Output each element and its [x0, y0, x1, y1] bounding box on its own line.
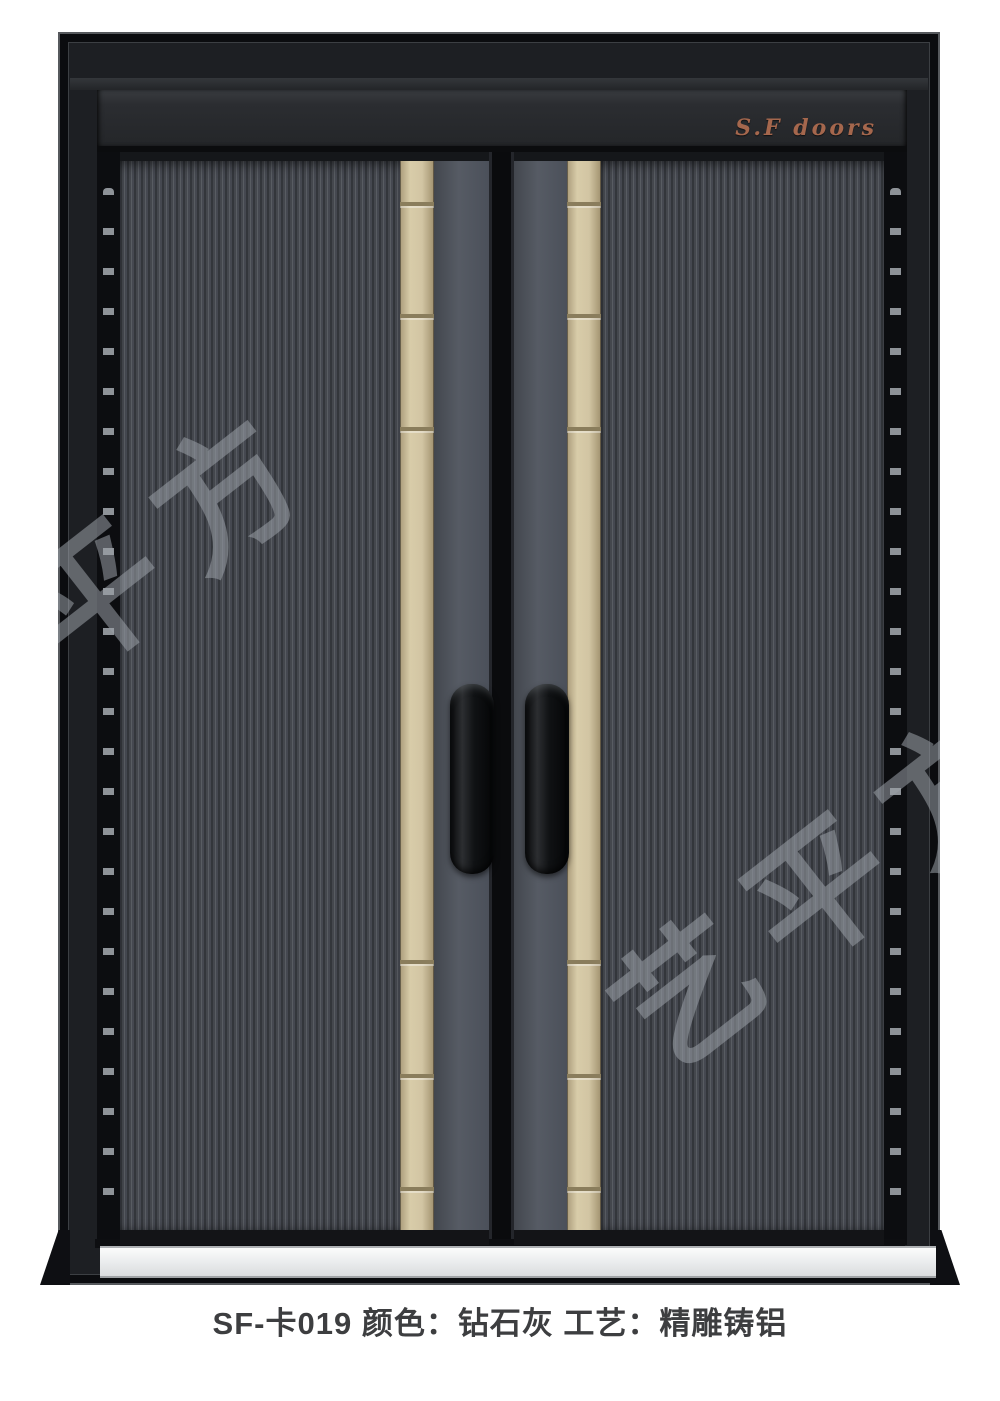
gold-divider [567, 202, 601, 206]
door-frame: S.F doors [58, 32, 940, 1285]
door-product-photo: S.F doors [0, 0, 1000, 1401]
left-door-leaf [120, 152, 489, 1245]
gold-divider [400, 427, 434, 431]
right-door-handle [525, 684, 569, 874]
right-gold-strip [567, 161, 601, 1232]
gold-divider [400, 1074, 434, 1078]
gold-divider [400, 960, 434, 964]
frame-top-bevel [70, 78, 928, 90]
right-door-leaf [514, 152, 884, 1245]
right-hinge-rail [884, 152, 907, 1245]
left-gold-strip [400, 161, 434, 1232]
left-hinge-rail [97, 152, 120, 1245]
gold-divider [400, 314, 434, 318]
left-ribbed-panel [120, 158, 400, 1235]
gold-divider [567, 427, 601, 431]
left-jamb-foot [40, 1230, 70, 1285]
gold-divider [400, 1187, 434, 1191]
threshold-sill [100, 1246, 936, 1278]
gold-divider [567, 960, 601, 964]
doorway [97, 152, 907, 1245]
gold-divider [567, 1074, 601, 1078]
right-ribbed-panel [601, 158, 884, 1235]
product-caption: SF-卡019 颜色：钻石灰 工艺：精雕铸铝 [0, 1298, 1000, 1343]
left-door-handle [450, 684, 494, 874]
gold-divider [400, 202, 434, 206]
transom-panel: S.F doors [97, 90, 907, 152]
gold-divider [567, 314, 601, 318]
brand-mark: S.F doors [735, 115, 877, 141]
gold-divider [567, 1187, 601, 1191]
